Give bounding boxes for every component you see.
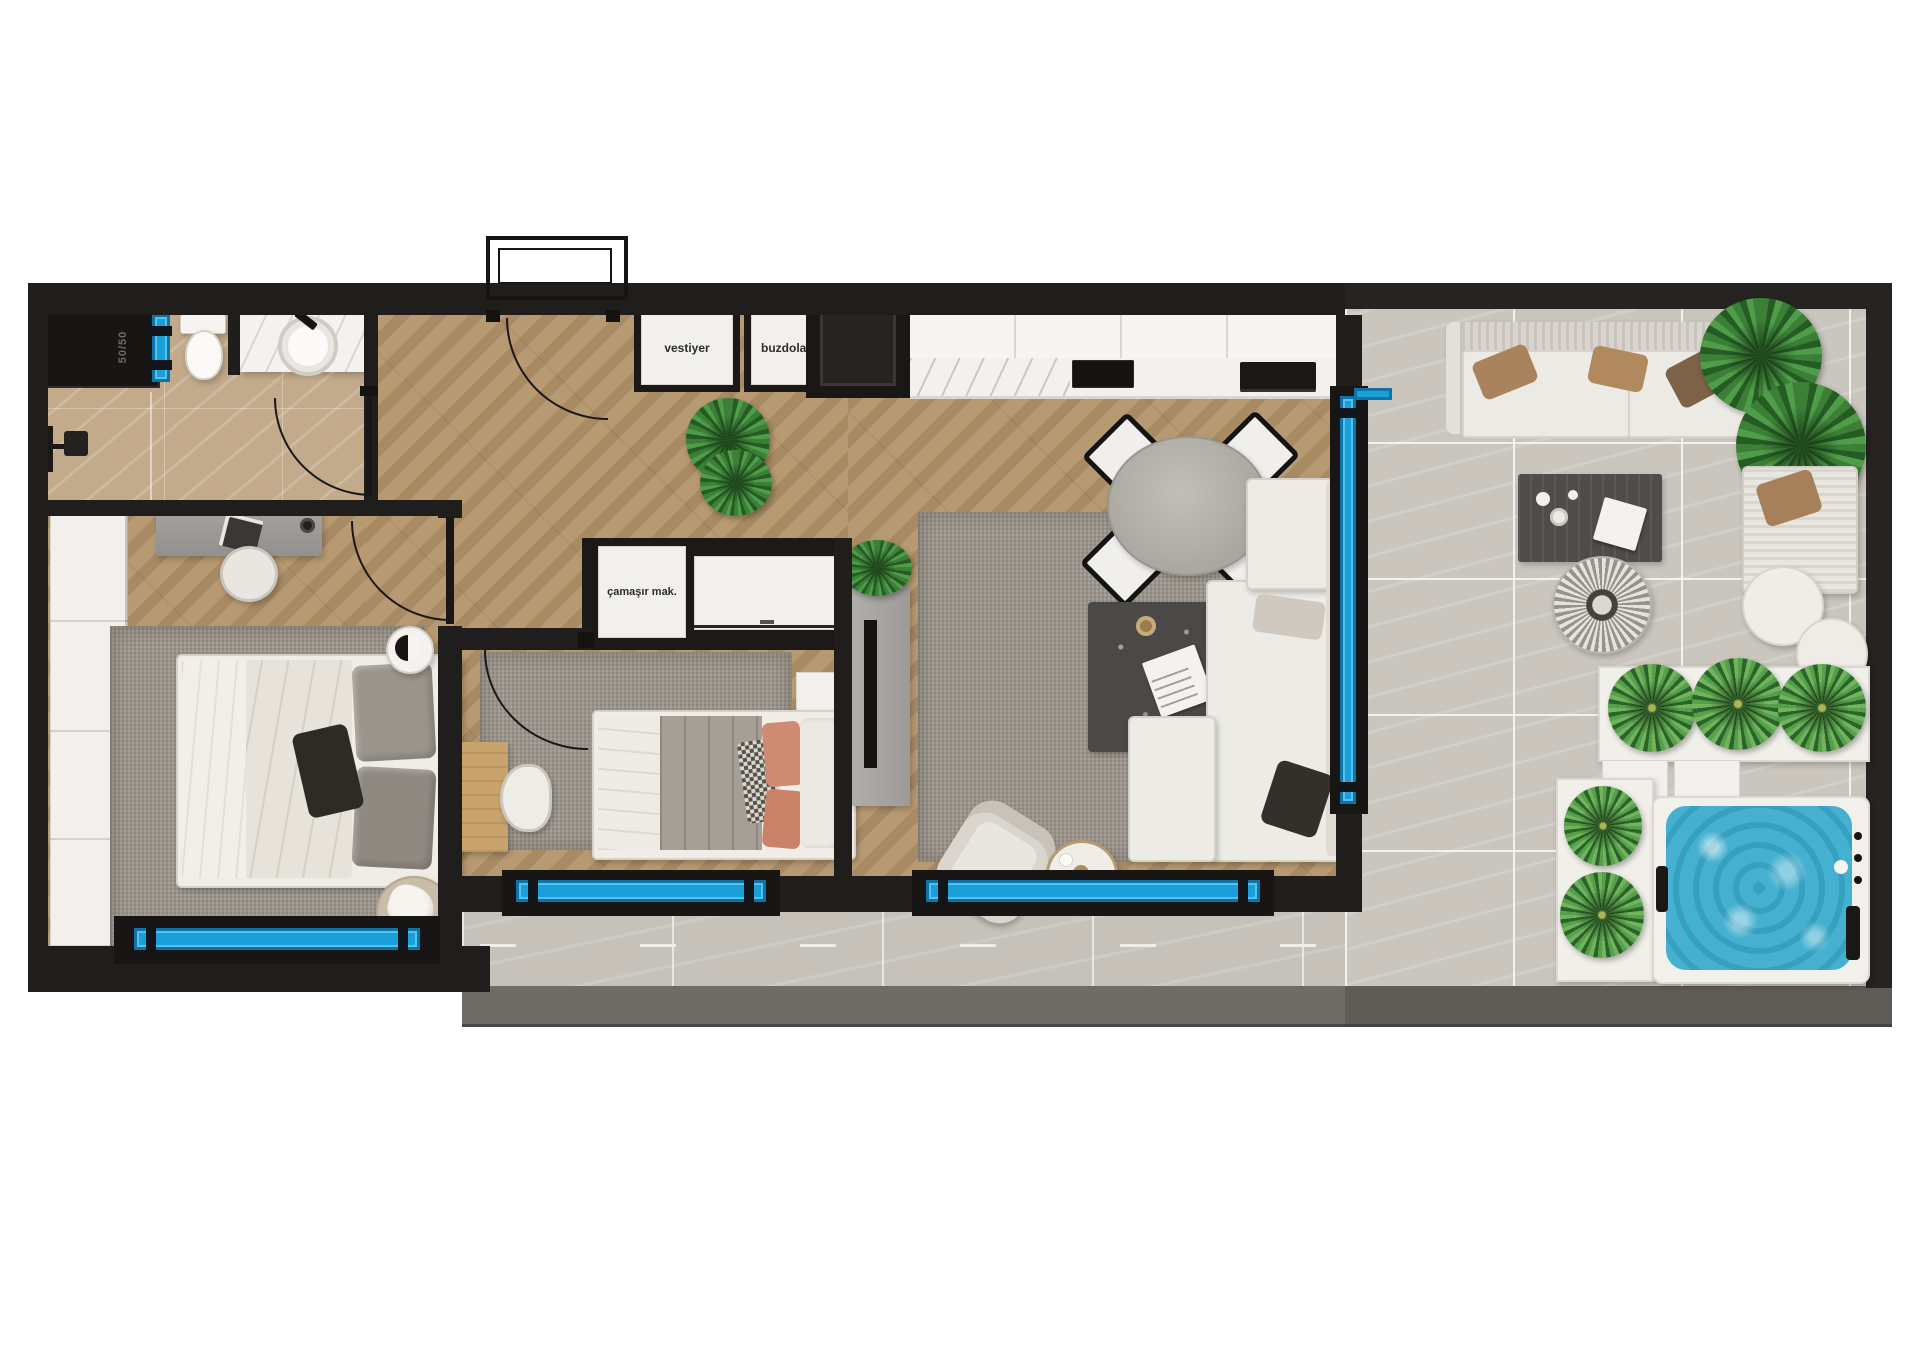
bedroom2-chair — [500, 764, 552, 832]
tv-unit — [852, 586, 910, 806]
shaft-window — [152, 314, 170, 382]
coat-closet-label: vestiyer — [641, 311, 733, 385]
bathroom-door-jamb — [360, 386, 378, 396]
bedroom2-pillow-pink — [761, 720, 804, 787]
bedroom2-door-jamb — [578, 632, 594, 648]
terrace-door-bracket — [1354, 388, 1392, 400]
rattan-side-table — [1552, 556, 1652, 654]
wall-terrace-top — [1345, 283, 1890, 309]
terrace-edge-band — [1345, 986, 1892, 1027]
shower-rail — [48, 426, 53, 472]
planter-plant — [1692, 658, 1784, 750]
sofa-seat — [1128, 716, 1216, 862]
shower-head — [64, 431, 88, 456]
bathroom-divider-wall — [228, 313, 240, 375]
cooktop — [1072, 360, 1134, 388]
floor-plan: 50/50 vestiyer buzdolabı — [0, 0, 1920, 1358]
planter-plant — [1564, 786, 1642, 866]
bed-sheet-fold — [182, 660, 246, 878]
cup — [1568, 490, 1578, 500]
walkway-edge-band — [462, 986, 1345, 1027]
wall-bedroom2-top — [452, 628, 592, 650]
terrace-sofa-arm — [1446, 322, 1462, 434]
planter-plant — [1560, 872, 1644, 958]
desk-chair — [220, 546, 278, 602]
cup — [1550, 508, 1568, 526]
indoor-plant — [700, 450, 772, 516]
wardrobe — [694, 556, 838, 630]
bedroom2-pillow-pink — [762, 788, 805, 849]
jacuzzi-knob — [1854, 876, 1862, 884]
desk-cup — [300, 518, 315, 533]
oven — [1240, 362, 1316, 392]
bedroom2-nightstand — [796, 672, 838, 712]
wall-bedroom-right-upper — [438, 500, 462, 518]
tv — [864, 620, 877, 768]
bed-pillow — [352, 662, 437, 762]
jacuzzi-knob — [1854, 854, 1862, 862]
terrace-sliding-door — [1340, 396, 1356, 804]
jacuzzi-headrest — [1656, 866, 1668, 912]
counter-marble — [910, 358, 1070, 396]
nightstand-lamp — [386, 626, 434, 674]
wall-terrace-divider-lower — [1336, 800, 1362, 912]
walkway-tile-dashes — [480, 944, 1330, 947]
planter-plant — [1608, 664, 1696, 752]
wall-bathroom-bottom — [28, 500, 462, 516]
wall-tv — [834, 538, 852, 884]
lounger-pad — [1674, 760, 1740, 800]
planter-plant — [1778, 664, 1866, 752]
shower-glass — [150, 392, 152, 502]
jacuzzi-water — [1666, 806, 1852, 970]
walkway-floor — [462, 908, 1345, 988]
jacuzzi-headrest — [1846, 906, 1860, 960]
cup — [1536, 492, 1550, 506]
jacuzzi-jet — [1834, 860, 1848, 874]
coffee-table-decor — [1136, 616, 1156, 636]
shaft-size-label: 50/50 — [92, 336, 154, 358]
bedroom2-window — [516, 880, 766, 902]
living-window — [926, 880, 1260, 902]
jacuzzi-knob — [1854, 832, 1862, 840]
bed-pillow — [351, 766, 436, 870]
dining-table — [1107, 436, 1269, 576]
indoor-plant — [842, 540, 912, 596]
wall-top — [28, 283, 1345, 315]
wall-left — [28, 283, 48, 992]
entry-door-jamb — [486, 310, 500, 322]
washing-machine-label: çamaşır mak. — [594, 546, 690, 638]
entry-door-frame — [486, 236, 628, 300]
toilet — [185, 330, 223, 380]
bedroom-window — [134, 928, 420, 950]
entry-door-jamb — [606, 310, 620, 322]
